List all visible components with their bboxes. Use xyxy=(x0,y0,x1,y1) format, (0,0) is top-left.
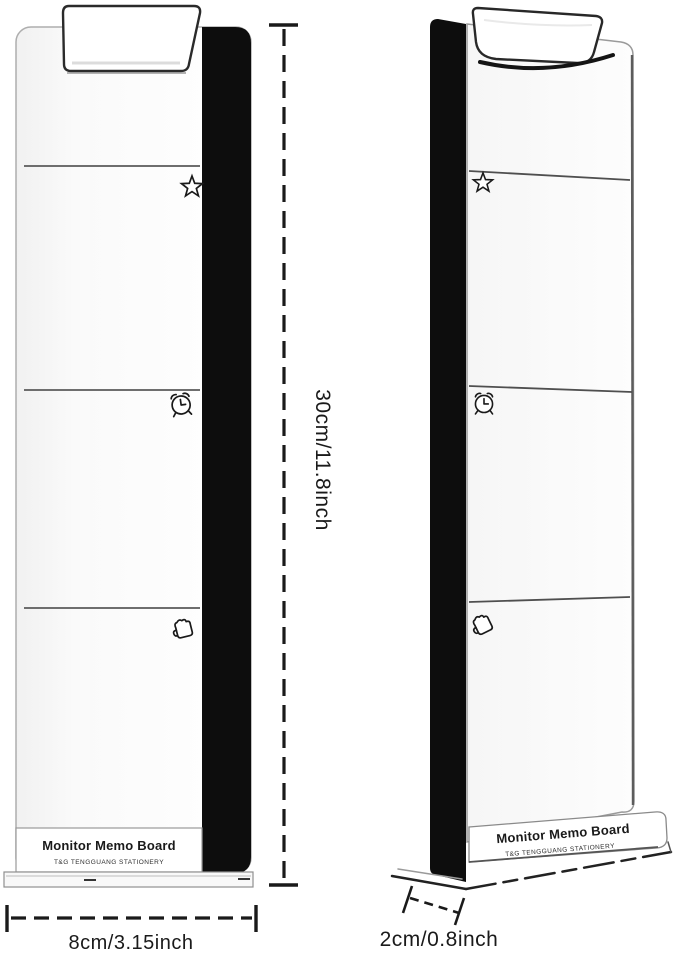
depth-dashed-line xyxy=(410,898,459,913)
side-board-edge xyxy=(632,55,633,805)
depth-dimension: 2cm/0.8inch xyxy=(380,886,499,951)
front-clip xyxy=(63,6,200,73)
side-black-strip xyxy=(430,19,466,882)
side-view: Monitor Memo Board T&G TENGGUANG STATION… xyxy=(392,8,671,889)
side-clip xyxy=(473,8,613,68)
front-view: Monitor Memo Board T&G TENGGUANG STATION… xyxy=(4,6,253,887)
front-base-tray xyxy=(4,872,253,887)
height-dimension-label: 30cm/11.8inch xyxy=(311,389,334,531)
front-black-strip xyxy=(202,27,251,873)
height-dimension: 30cm/11.8inch xyxy=(269,25,334,885)
diagram-svg: Monitor Memo Board T&G TENGGUANG STATION… xyxy=(0,0,679,953)
side-board xyxy=(467,24,634,842)
front-label-title: Monitor Memo Board xyxy=(42,838,176,853)
product-dimension-image: Monitor Memo Board T&G TENGGUANG STATION… xyxy=(0,0,679,953)
width-dimension-label: 8cm/3.15inch xyxy=(69,932,194,953)
width-dimension: 8cm/3.15inch xyxy=(7,905,256,953)
depth-dimension-label: 2cm/0.8inch xyxy=(380,928,499,951)
front-label-bar: Monitor Memo Board T&G TENGGUANG STATION… xyxy=(16,828,202,872)
front-label-subtitle: T&G TENGGUANG STATIONERY xyxy=(54,859,164,866)
